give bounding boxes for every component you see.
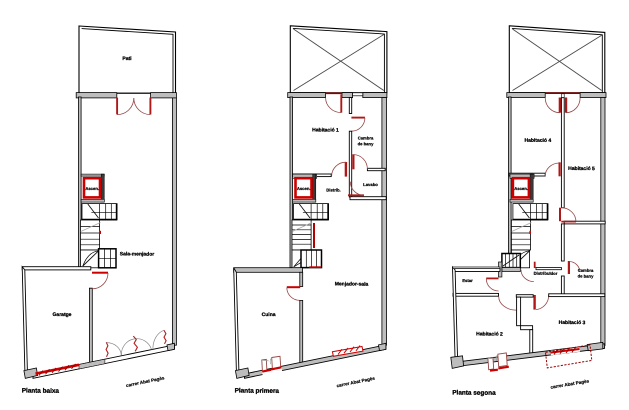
svg-text:Lavabo: Lavabo [363,182,378,187]
svg-text:Habitació 4: Habitació 4 [524,138,551,144]
svg-text:Ascen.: Ascen. [514,186,528,191]
svg-text:Distribuïdor: Distribuïdor [534,271,558,276]
svg-text:Cuina: Cuina [262,312,276,318]
svg-text:Distrib.: Distrib. [326,187,340,192]
svg-text:Pati: Pati [122,56,132,62]
svg-text:Estar: Estar [462,278,473,283]
svg-text:Garatge: Garatge [53,312,72,318]
svg-text:Sala-menjador: Sala-menjador [120,251,155,257]
svg-text:Planta segona: Planta segona [452,390,496,397]
svg-text:Ascen.: Ascen. [85,186,99,191]
svg-text:Menjador-sala: Menjador-sala [335,281,369,287]
svg-text:de bany: de bany [358,141,375,146]
svg-text:Planta primera: Planta primera [235,388,280,395]
svg-text:Cambra: Cambra [578,268,594,273]
svg-text:Habitació 5: Habitació 5 [568,166,595,172]
svg-text:Habitació 3: Habitació 3 [559,320,586,326]
svg-text:Planta baixa: Planta baixa [22,388,60,395]
svg-text:Ascen.: Ascen. [297,186,311,191]
svg-text:Habitació 1: Habitació 1 [312,127,339,133]
svg-text:Habitació 2: Habitació 2 [476,331,503,337]
svg-text:de bany: de bany [578,274,595,279]
svg-text:Cambra: Cambra [358,135,374,140]
